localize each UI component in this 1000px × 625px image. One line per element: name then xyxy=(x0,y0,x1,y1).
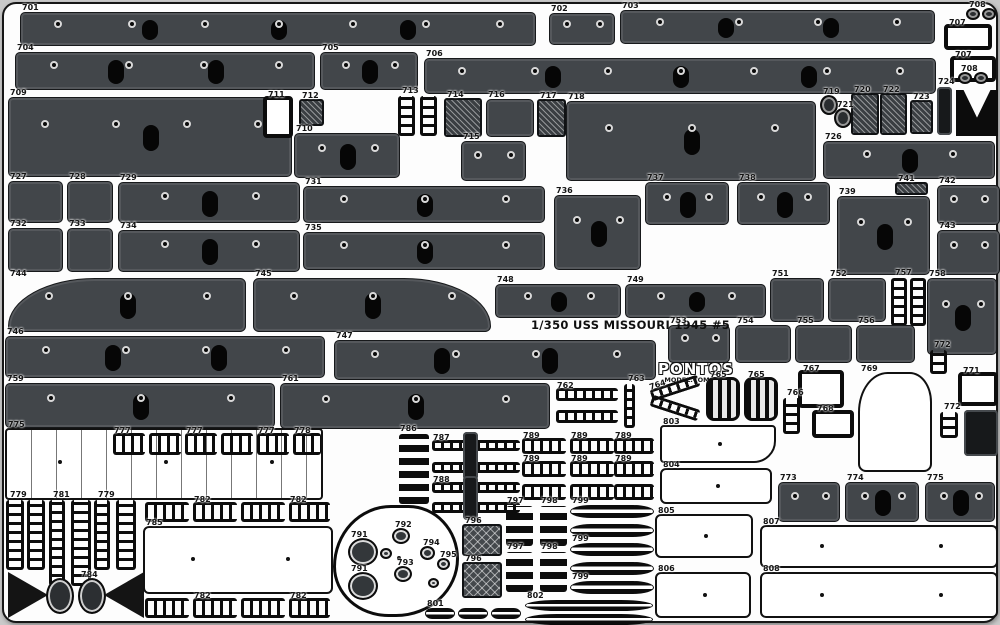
etch-porthole xyxy=(942,300,950,308)
etch-porthole xyxy=(128,20,136,28)
part-791: 791 xyxy=(348,572,378,600)
part-749: 749 xyxy=(625,284,766,318)
part-number-label: 758 xyxy=(929,270,946,278)
part-789: 789 xyxy=(522,461,566,477)
etch-porthole xyxy=(898,492,906,500)
part-number-label: 734 xyxy=(120,222,137,230)
part-number-label: 767 xyxy=(803,365,820,373)
etch-porthole xyxy=(252,240,260,248)
part-number-label: 789 xyxy=(615,432,632,440)
part-761: 761 xyxy=(280,383,550,429)
part-779: 779 xyxy=(6,500,24,570)
part-number-label: 722 xyxy=(883,86,900,94)
part-779: 779 xyxy=(94,500,110,570)
part-747: 747 xyxy=(334,340,656,380)
part-777: 777 xyxy=(113,433,145,455)
etch-rivet xyxy=(58,460,62,464)
part-number-label: 789 xyxy=(571,432,588,440)
etch-porthole xyxy=(896,67,904,75)
etch-slot xyxy=(142,20,158,40)
part-754: 754 xyxy=(735,325,791,363)
etch-porthole xyxy=(340,195,348,203)
part-number-label: 718 xyxy=(568,93,585,101)
etch-porthole xyxy=(904,218,912,226)
fret-decor xyxy=(974,72,988,84)
part-number-label: 808 xyxy=(763,565,780,573)
part-735: 735 xyxy=(303,232,545,270)
part-781: 781 xyxy=(49,500,65,586)
etch-porthole xyxy=(448,292,456,300)
part-number-label: 768 xyxy=(817,405,834,413)
part-number-label: 751 xyxy=(772,270,789,278)
part-769: 769 xyxy=(858,372,932,472)
etch-porthole xyxy=(950,241,958,249)
etch-rivet xyxy=(704,534,708,538)
etch-porthole xyxy=(507,151,515,159)
fret-decor xyxy=(491,608,521,619)
photoetch-sheet-image: 7017027037087077077087047057067247257097… xyxy=(0,0,1000,625)
etch-rivet xyxy=(939,593,943,597)
fret-decor xyxy=(420,96,437,136)
sheet-title: 1/350 USS MISSOURI 1945 #5 xyxy=(531,318,730,332)
part-782: 782 xyxy=(289,598,330,618)
etch-porthole xyxy=(42,346,50,354)
etch-slot xyxy=(591,221,607,247)
etch-porthole xyxy=(54,20,62,28)
etch-porthole xyxy=(421,195,429,203)
etch-slot xyxy=(208,60,224,84)
part-778: 778 xyxy=(293,433,321,455)
part-number-label: 729 xyxy=(120,174,137,182)
etch-porthole xyxy=(50,61,58,69)
etch-slot xyxy=(108,60,124,84)
part-number-label: 744 xyxy=(10,270,27,278)
etch-porthole xyxy=(981,195,989,203)
part-704: 704 xyxy=(15,52,315,90)
part-number-label: 742 xyxy=(939,177,956,185)
part-797: 797 xyxy=(506,506,533,546)
etch-porthole xyxy=(949,150,957,158)
part-793: 793 xyxy=(394,566,412,582)
etch-slot xyxy=(953,490,969,516)
part-number-label: 789 xyxy=(571,455,588,463)
part-789: 789 xyxy=(570,461,614,477)
etch-porthole xyxy=(422,20,430,28)
part-775: 775 xyxy=(925,482,995,522)
fret-decor xyxy=(463,432,478,480)
fret-decor xyxy=(116,500,136,570)
part-number-label: 756 xyxy=(858,317,875,325)
etch-porthole xyxy=(474,151,482,159)
part-774: 774 xyxy=(845,482,919,522)
etch-porthole xyxy=(613,350,621,358)
part-number-label: 789 xyxy=(615,455,632,463)
etch-rivet xyxy=(164,460,168,464)
etch-porthole xyxy=(712,334,720,342)
etch-porthole xyxy=(290,292,298,300)
etch-porthole xyxy=(681,334,689,342)
etch-porthole xyxy=(201,20,209,28)
etch-porthole xyxy=(563,20,571,28)
part-number-label: 759 xyxy=(7,375,24,383)
part-number-label: 778 xyxy=(294,427,311,435)
part-number-label: 761 xyxy=(282,375,299,383)
part-748: 748 xyxy=(495,284,621,318)
fret-decor xyxy=(221,433,253,455)
part-number-label: 779 xyxy=(10,491,27,499)
part-number-label: 706 xyxy=(426,50,443,58)
etch-porthole xyxy=(814,18,822,26)
part-716: 716 xyxy=(486,99,534,137)
part-792: 792 xyxy=(392,528,410,544)
part-number-label: 738 xyxy=(739,174,756,182)
part-number-label: 797 xyxy=(507,543,524,551)
fret-decor xyxy=(46,578,74,614)
part-number-label: 798 xyxy=(541,497,558,505)
part-727: 727 xyxy=(8,181,63,223)
part-number-label: 733 xyxy=(69,220,86,228)
part-720: 720 xyxy=(851,93,879,135)
part-number-label: 748 xyxy=(497,276,514,284)
fret-decor xyxy=(27,500,45,570)
fret-decor xyxy=(241,598,285,618)
part-785: 785 xyxy=(143,526,333,594)
part-number-label: 769 xyxy=(861,365,878,373)
part-number-label: 785 xyxy=(146,519,163,527)
part-number-label: 807 xyxy=(763,518,780,526)
etch-porthole xyxy=(791,492,799,500)
etch-porthole xyxy=(804,193,812,201)
part-712: 712 xyxy=(299,99,324,126)
etch-rivet xyxy=(703,593,707,597)
etch-porthole xyxy=(458,67,466,75)
part-number-label: 701 xyxy=(22,4,39,12)
etch-porthole xyxy=(657,292,665,300)
part-765: 765 xyxy=(744,377,778,421)
etch-porthole xyxy=(340,241,348,249)
part-number-label: 728 xyxy=(69,173,86,181)
etch-porthole xyxy=(616,216,624,224)
etch-porthole xyxy=(41,120,49,128)
part-782: 782 xyxy=(193,598,237,618)
part-number-label: 717 xyxy=(540,92,557,100)
part-number-label: 796 xyxy=(465,555,482,563)
part-771: 771 xyxy=(958,372,998,406)
part-784: 784 xyxy=(78,578,106,614)
part-721: 721 xyxy=(834,108,852,128)
etch-porthole xyxy=(502,195,510,203)
etch-porthole xyxy=(573,216,581,224)
etch-rivet xyxy=(270,460,274,464)
part-number-label: 781 xyxy=(53,491,70,499)
part-number-label: 806 xyxy=(658,565,675,573)
part-791: 791 xyxy=(348,538,378,566)
part-768: 768 xyxy=(812,410,854,438)
part-number-label: 736 xyxy=(556,187,573,195)
part-number-label: 765 xyxy=(748,371,765,379)
part-703: 703 xyxy=(620,10,935,44)
part-711: 711 xyxy=(263,96,293,138)
etch-porthole xyxy=(200,61,208,69)
part-772: 772 xyxy=(930,350,947,374)
part-number-label: 708 xyxy=(961,65,978,73)
etch-rivet xyxy=(718,442,722,446)
etch-porthole xyxy=(496,20,504,28)
fret-decor xyxy=(910,278,926,326)
etch-slot xyxy=(400,20,416,40)
etch-porthole xyxy=(203,292,211,300)
part-number-label: 799 xyxy=(572,535,589,543)
part-number-label: 792 xyxy=(395,521,412,529)
etch-porthole xyxy=(677,67,685,75)
part-number-label: 784 xyxy=(81,571,98,579)
part-number-label: 773 xyxy=(780,474,797,482)
etch-porthole xyxy=(861,492,869,500)
part-803: 803 xyxy=(660,425,776,463)
part-807: 807 xyxy=(760,525,998,568)
fret-decor xyxy=(104,572,144,618)
part-794: 794 xyxy=(420,546,435,560)
part-number-label: 716 xyxy=(488,91,505,99)
part-777: 777 xyxy=(257,433,289,455)
part-number-label: 737 xyxy=(647,174,664,182)
etch-slot xyxy=(542,348,558,374)
part-701: 701 xyxy=(20,12,536,46)
fret-decor xyxy=(525,614,653,625)
part-number-label: 707 xyxy=(955,51,972,59)
part-782: 782 xyxy=(289,502,330,522)
part-789: 789 xyxy=(570,438,614,454)
part-number-label: 772 xyxy=(934,341,951,349)
fret-decor xyxy=(463,476,478,520)
part-799: 799 xyxy=(570,543,654,556)
part-number-label: 714 xyxy=(447,91,464,99)
part-724: 724 xyxy=(937,87,952,135)
part-752: 752 xyxy=(828,278,886,322)
fret-decor xyxy=(614,484,654,500)
part-number-label: 789 xyxy=(523,455,540,463)
etch-porthole xyxy=(227,394,235,402)
part-number-label: 702 xyxy=(551,5,568,13)
etch-porthole xyxy=(822,492,830,500)
part-number-label: 745 xyxy=(255,270,272,278)
fret-decor xyxy=(145,598,189,618)
brand-name: PONTOS xyxy=(658,362,716,377)
part-number-label: 775 xyxy=(927,474,944,482)
part-736: 736 xyxy=(554,195,641,270)
part-number-label: 754 xyxy=(737,317,754,325)
part-743: 743 xyxy=(937,230,1000,275)
part-742: 742 xyxy=(937,185,1000,225)
etch-slot xyxy=(105,345,121,371)
part-772: 772 xyxy=(940,412,958,438)
part-number-label: 805 xyxy=(658,507,675,515)
etch-rivet xyxy=(939,544,943,548)
part-number-label: 795 xyxy=(440,551,457,559)
fret-decor xyxy=(380,548,392,559)
fret-decor xyxy=(241,502,285,522)
part-756: 756 xyxy=(856,325,915,363)
etch-porthole xyxy=(771,124,779,132)
part-806: 806 xyxy=(655,572,751,618)
part-number-label: 782 xyxy=(290,592,307,600)
part-number-label: 771 xyxy=(963,367,980,375)
part-744: 744 xyxy=(8,278,246,332)
part-number-label: 803 xyxy=(663,418,680,426)
part-717: 717 xyxy=(537,99,566,137)
part-number-label: 774 xyxy=(847,474,864,482)
etch-porthole xyxy=(202,346,210,354)
etch-porthole xyxy=(371,144,379,152)
fret-decor xyxy=(556,410,618,423)
fret-decor xyxy=(149,433,181,455)
part-number-label: 710 xyxy=(296,125,313,133)
part-number-label: 782 xyxy=(290,496,307,504)
etch-porthole xyxy=(705,193,713,201)
part-number-label: 708 xyxy=(969,1,986,9)
part-number-label: 712 xyxy=(302,92,319,100)
part-728: 728 xyxy=(67,181,113,223)
part-802: 802 xyxy=(525,600,653,611)
part-number-label: 788 xyxy=(433,476,450,484)
etch-porthole xyxy=(605,124,613,132)
part-789: 789 xyxy=(614,438,654,454)
part-713: 713 xyxy=(398,96,415,136)
etch-slot xyxy=(902,149,918,173)
part-number-label: 762 xyxy=(557,382,574,390)
part-number-label: 753 xyxy=(670,317,687,325)
part-number-label: 797 xyxy=(507,497,524,505)
part-number-label: 798 xyxy=(541,543,558,551)
etch-porthole xyxy=(823,67,831,75)
etch-porthole xyxy=(857,218,865,226)
part-757: 757 xyxy=(891,278,907,326)
etch-porthole xyxy=(371,350,379,358)
etch-porthole xyxy=(391,61,399,69)
brand-url: MODEL.COM xyxy=(658,377,716,384)
etch-slot xyxy=(877,224,893,250)
part-786: 786 xyxy=(399,434,429,504)
part-number-label: 777 xyxy=(186,427,203,435)
etch-porthole xyxy=(282,346,290,354)
part-number-label: 724 xyxy=(938,78,955,86)
etch-porthole xyxy=(342,61,350,69)
etch-slot xyxy=(718,18,734,38)
etch-slot xyxy=(801,66,817,88)
part-799: 799 xyxy=(570,505,654,518)
etch-porthole xyxy=(47,394,55,402)
etch-slot xyxy=(777,192,793,218)
part-718: 718 xyxy=(566,101,816,181)
part-number-label: 743 xyxy=(939,222,956,230)
part-number-label: 799 xyxy=(572,573,589,581)
part-number-label: 746 xyxy=(7,328,24,336)
etch-porthole xyxy=(688,124,696,132)
part-709: 709 xyxy=(8,97,292,177)
part-number-label: 732 xyxy=(10,220,27,228)
part-799: 799 xyxy=(570,581,654,594)
part-number-label: 791 xyxy=(351,565,368,573)
part-722: 722 xyxy=(880,93,907,135)
part-755: 755 xyxy=(795,325,852,363)
part-725: 725 xyxy=(956,90,998,136)
part-773: 773 xyxy=(778,482,840,522)
etch-slot xyxy=(545,66,561,88)
part-745: 745 xyxy=(253,278,491,332)
etch-slot xyxy=(340,144,356,170)
etch-porthole xyxy=(728,292,736,300)
part-782: 782 xyxy=(193,502,237,522)
part-729: 729 xyxy=(118,182,300,223)
etch-porthole xyxy=(863,150,871,158)
parts-layer: 7017027037087077077087047057067247257097… xyxy=(0,0,1000,625)
part-number-label: 755 xyxy=(797,317,814,325)
part-731: 731 xyxy=(303,186,545,223)
etch-porthole xyxy=(604,67,612,75)
etch-porthole xyxy=(122,346,130,354)
etch-porthole xyxy=(502,395,510,403)
part-number-label: 794 xyxy=(423,539,440,547)
etch-slot xyxy=(955,305,971,331)
part-808: 808 xyxy=(760,572,998,618)
part-777: 777 xyxy=(185,433,217,455)
part-705: 705 xyxy=(320,52,418,90)
etch-porthole xyxy=(254,120,262,128)
part-762: 762 xyxy=(556,388,618,401)
part-708: 708 xyxy=(966,8,980,20)
part-805: 805 xyxy=(655,514,753,558)
part-763: 763 xyxy=(624,384,635,428)
etch-porthole xyxy=(252,192,260,200)
part-746: 746 xyxy=(5,336,325,378)
part-number-label: 752 xyxy=(830,270,847,278)
etch-rivet xyxy=(716,484,720,488)
fret-decor xyxy=(982,8,996,20)
part-number-label: 775 xyxy=(8,421,25,429)
etch-porthole xyxy=(412,395,420,403)
etch-rivet xyxy=(820,544,824,548)
part-798: 798 xyxy=(540,552,567,592)
part-number-label: 749 xyxy=(627,276,644,284)
etch-porthole xyxy=(524,292,532,300)
etch-slot xyxy=(684,129,700,155)
part-number-label: 772 xyxy=(944,403,961,411)
etch-porthole xyxy=(940,492,948,500)
etch-slot xyxy=(823,18,839,38)
etch-porthole xyxy=(502,241,510,249)
part-739: 739 xyxy=(837,196,930,275)
part-702: 702 xyxy=(549,13,615,45)
part-number-label: 747 xyxy=(336,332,353,340)
part-732: 732 xyxy=(8,228,63,272)
part-795: 795 xyxy=(437,558,450,570)
part-number-label: 726 xyxy=(825,133,842,141)
etch-slot xyxy=(551,292,567,312)
etch-rivet xyxy=(286,557,290,561)
part-783: 783 xyxy=(8,572,48,618)
part-number-label: 779 xyxy=(98,491,115,499)
etch-porthole xyxy=(112,120,120,128)
part-number-label: 801 xyxy=(427,600,444,608)
fret-decor xyxy=(428,578,439,588)
etch-porthole xyxy=(161,240,169,248)
part-number-label: 802 xyxy=(527,592,544,600)
etch-slot xyxy=(362,60,378,84)
etch-porthole xyxy=(893,18,901,26)
part-796: 796 xyxy=(462,524,502,556)
part-789: 789 xyxy=(522,438,566,454)
etch-porthole xyxy=(45,292,53,300)
